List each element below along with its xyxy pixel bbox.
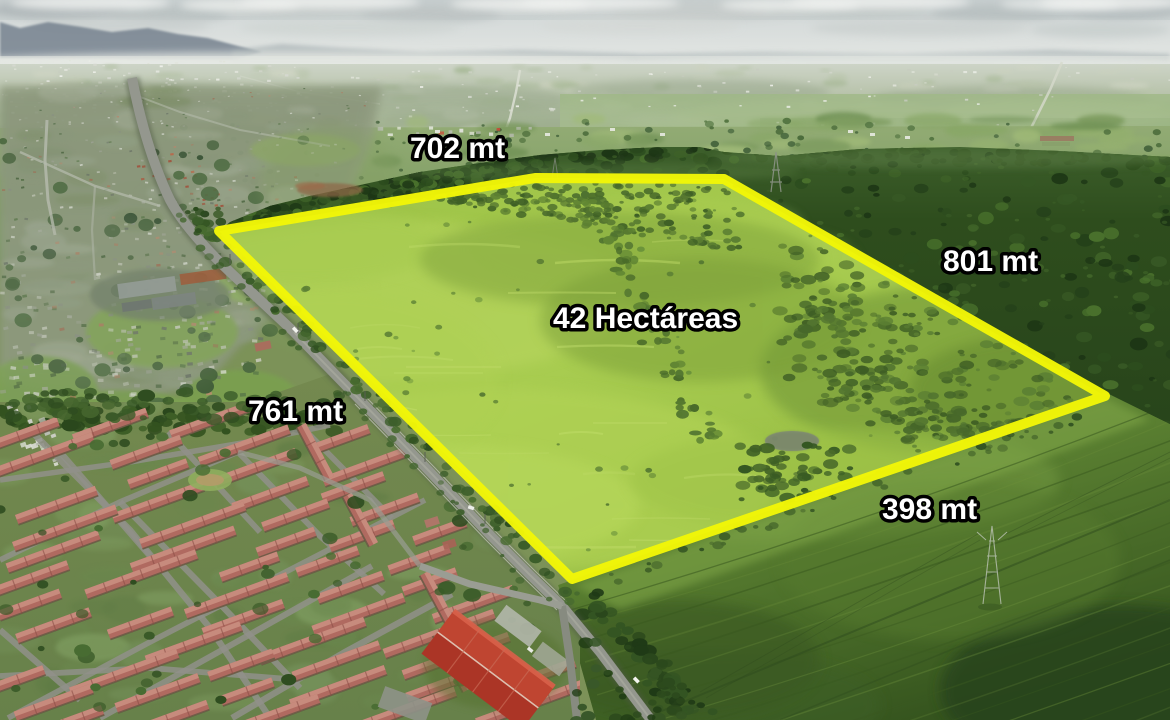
svg-text:761 mt: 761 mt: [248, 395, 343, 428]
svg-text:801 mt: 801 mt: [943, 245, 1038, 278]
svg-text:42 Hectáreas: 42 Hectáreas: [553, 302, 738, 335]
svg-text:702 mt: 702 mt: [410, 132, 505, 165]
svg-text:398 mt: 398 mt: [882, 493, 977, 526]
